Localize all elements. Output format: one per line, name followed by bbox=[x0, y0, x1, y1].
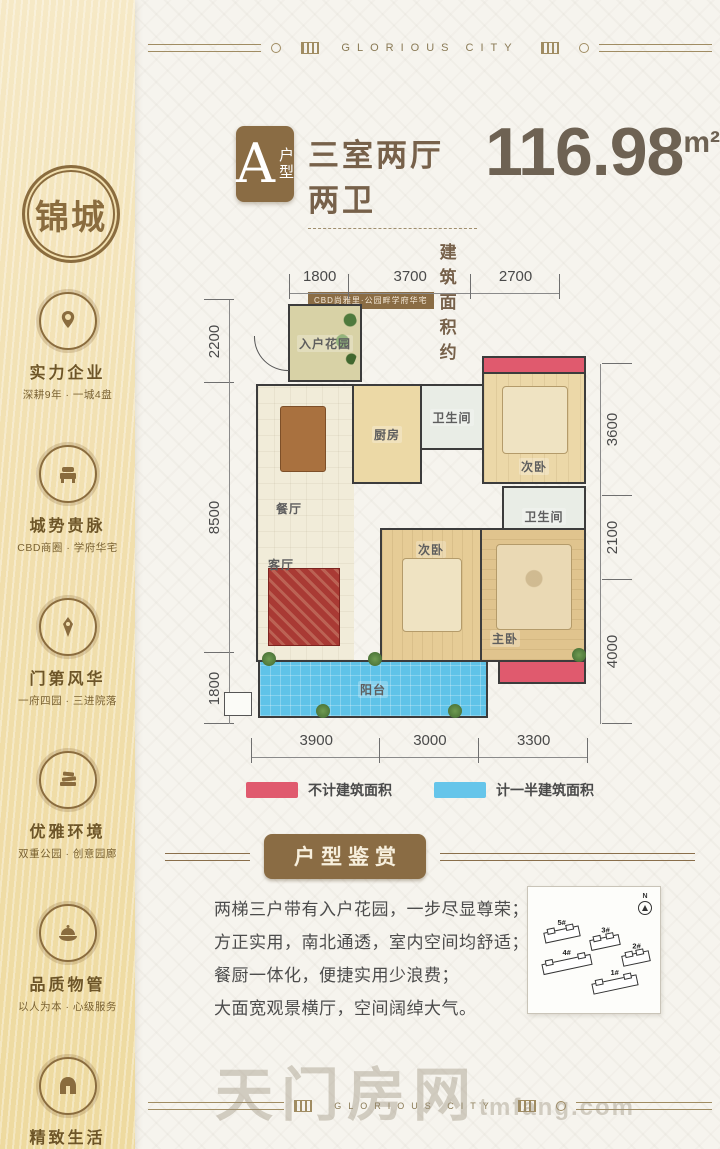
badge-title: 城势贵脉 bbox=[29, 512, 105, 536]
section-rule bbox=[440, 853, 695, 861]
living-room-rug bbox=[268, 568, 340, 646]
legend-label: 不计建筑面积 bbox=[308, 780, 392, 800]
banner-dot-ornament bbox=[556, 1101, 566, 1111]
room-label: 主卧 bbox=[490, 630, 520, 647]
dim-value: 2100 bbox=[605, 521, 622, 554]
plant-icon bbox=[448, 704, 462, 718]
building-outline: 2# bbox=[621, 950, 651, 967]
room-entry-garden: 入户花园 bbox=[288, 304, 362, 382]
pavilion-icon bbox=[39, 1057, 97, 1115]
legend-item-blue: 计一半建筑面积 bbox=[434, 780, 594, 800]
area-unit: m² bbox=[683, 126, 720, 160]
red-balcony-strip-bottom bbox=[498, 660, 586, 684]
bottom-banner: GLORIOUS CITY bbox=[148, 1100, 712, 1112]
description-line: 餐厨一体化，便捷实用少浪费； bbox=[214, 959, 530, 992]
dim-value: 2700 bbox=[499, 268, 532, 285]
books-icon bbox=[39, 751, 97, 809]
north-label: N bbox=[638, 893, 652, 900]
building-label: 4# bbox=[562, 948, 570, 957]
badge-heritage: 门第风华 一府四园 · 三进院落 bbox=[0, 598, 135, 708]
plant-icon bbox=[368, 652, 382, 666]
section-rule bbox=[165, 853, 250, 861]
badge-environment: 优雅环境 双重公园 · 创意园廊 bbox=[0, 751, 135, 861]
building-label: 5# bbox=[558, 918, 566, 927]
banner-square-ornament bbox=[301, 42, 319, 54]
service-tray-icon bbox=[39, 904, 97, 962]
building-outline: 1# bbox=[591, 974, 638, 994]
plant-icon bbox=[572, 648, 586, 662]
banner-square-ornament bbox=[518, 1100, 536, 1112]
banner-rule bbox=[148, 1102, 284, 1110]
banner-text: GLORIOUS CITY bbox=[334, 1101, 496, 1111]
plant-icon bbox=[262, 652, 276, 666]
dim-value: 1800 bbox=[303, 268, 336, 285]
dim-value: 3600 bbox=[605, 413, 622, 446]
sidebar: 锦城 实力企业 深耕9年 · 一城4盘 城势贵脉 CBD商圈 · 学府华宅 bbox=[0, 0, 135, 1149]
room-label: 餐厅 bbox=[276, 500, 302, 517]
bed bbox=[402, 558, 462, 632]
room-label: 入户花园 bbox=[297, 335, 353, 352]
dim-value: 3700 bbox=[393, 268, 426, 285]
dim-value: 4000 bbox=[605, 635, 622, 668]
top-banner: GLORIOUS CITY bbox=[148, 42, 712, 54]
dims-right: 3600 2100 4000 bbox=[600, 364, 626, 724]
brand-seal-logo: 锦城 bbox=[22, 165, 120, 263]
area-figure: 116.98 m² bbox=[485, 118, 720, 186]
dim-value: 2200 bbox=[207, 325, 224, 358]
badge-subtitle: CBD商圈 · 学府华宅 bbox=[17, 540, 118, 555]
badge-subtitle: 一府四园 · 三进院落 bbox=[18, 693, 117, 708]
banner-rule bbox=[576, 1102, 712, 1110]
watermark-cn: 天门房网 bbox=[215, 1063, 479, 1128]
badge-location: 城势贵脉 CBD商圈 · 学府华宅 bbox=[0, 445, 135, 555]
description-line: 两梯三户带有入户花园，一步尽显尊荣； bbox=[214, 893, 530, 926]
entry-door-arc bbox=[254, 336, 289, 371]
badge-subtitle: 深耕9年 · 一城4盘 bbox=[23, 387, 113, 402]
banner-rule bbox=[599, 44, 712, 52]
badge-property: 品质物管 以人为本 · 心级服务 bbox=[0, 904, 135, 1014]
dim-value: 3900 bbox=[300, 732, 333, 749]
section-header: 户型鉴赏 bbox=[165, 834, 695, 879]
room-label: 阳台 bbox=[358, 681, 388, 698]
building-label: 3# bbox=[601, 926, 609, 935]
red-balcony-strip-top bbox=[482, 356, 586, 374]
room-label: 次卧 bbox=[519, 458, 549, 475]
banner-square-ornament bbox=[294, 1100, 312, 1112]
dims-bottom: 3900 3000 3300 bbox=[252, 732, 588, 758]
north-arrow-icon: N bbox=[638, 893, 652, 915]
room-bathroom-1: 卫生间 bbox=[420, 384, 484, 450]
banner-square-ornament bbox=[541, 42, 559, 54]
pen-nib-icon bbox=[39, 598, 97, 656]
badge-title: 优雅环境 bbox=[29, 818, 105, 842]
room-label: 次卧 bbox=[416, 541, 446, 558]
unit-type-box: A 户 型 bbox=[236, 126, 294, 202]
building-outline: 3# bbox=[589, 934, 621, 951]
floor-plan: 入户花园 餐厅 客厅 厨房 卫生间 次卧 卫生间 次卧 主卧 阳台 bbox=[252, 300, 588, 724]
master-bed bbox=[496, 544, 572, 630]
layout-title: 三室两厅两卫 bbox=[308, 130, 477, 229]
banner-dot-ornament bbox=[271, 43, 281, 53]
badge-title: 门第风华 bbox=[29, 665, 105, 689]
unit-letter: A bbox=[236, 137, 275, 191]
throne-icon bbox=[39, 445, 97, 503]
building-outline: 4# bbox=[541, 954, 592, 975]
room-label: 卫生间 bbox=[430, 409, 473, 426]
poster-page: 锦城 实力企业 深耕9年 · 一城4盘 城势贵脉 CBD商圈 · 学府华宅 bbox=[0, 0, 720, 1149]
badge-lifestyle: 精致生活 一个5优家 · 一个6星厨 bbox=[0, 1057, 135, 1149]
dining-table bbox=[280, 406, 326, 472]
area-value: 116.98 bbox=[485, 118, 683, 186]
building-label: 2# bbox=[632, 942, 640, 951]
plan-legend: 不计建筑面积 计一半建筑面积 bbox=[150, 780, 690, 800]
banner-dot-ornament bbox=[579, 43, 589, 53]
plant-icon bbox=[316, 704, 330, 718]
red-swatch bbox=[246, 782, 298, 798]
logo-text: 锦城 bbox=[35, 190, 107, 239]
dim-value: 3000 bbox=[413, 732, 446, 749]
ac-platform bbox=[224, 692, 252, 716]
site-plan: N 5# 3# 2# 4# 1# bbox=[527, 886, 661, 1014]
description-line: 大面宽观景横厅，空间阔绰大气。 bbox=[214, 992, 530, 1025]
location-pin-icon bbox=[39, 292, 97, 350]
description-text: 两梯三户带有入户花园，一步尽显尊荣； 方正实用，南北通透，室内空间均舒适； 餐厨… bbox=[214, 893, 530, 1026]
dim-value: 8500 bbox=[207, 501, 224, 534]
badge-title: 精致生活 bbox=[29, 1124, 105, 1148]
legend-item-red: 不计建筑面积 bbox=[246, 780, 392, 800]
banner-text: GLORIOUS CITY bbox=[341, 42, 518, 54]
legend-label: 计一半建筑面积 bbox=[496, 780, 594, 800]
dim-value: 1800 bbox=[207, 672, 224, 705]
watermark: 天门房网tmfang.com bbox=[150, 1048, 700, 1132]
description-line: 方正实用，南北通透，室内空间均舒适； bbox=[214, 926, 530, 959]
badge-title: 品质物管 bbox=[29, 971, 105, 995]
badge-title: 实力企业 bbox=[29, 359, 105, 383]
banner-rule bbox=[148, 44, 261, 52]
dim-value: 3300 bbox=[517, 732, 550, 749]
section-title-badge: 户型鉴赏 bbox=[264, 834, 426, 879]
badge-subtitle: 双重公园 · 创意园廊 bbox=[18, 846, 117, 861]
dims-top: 1800 3700 2700 bbox=[290, 268, 560, 294]
building-label: 1# bbox=[610, 968, 618, 977]
unit-label: 户 型 bbox=[279, 147, 294, 182]
feature-badges: 实力企业 深耕9年 · 一城4盘 城势贵脉 CBD商圈 · 学府华宅 门第风华 … bbox=[0, 292, 135, 1149]
room-label: 厨房 bbox=[372, 426, 402, 443]
badge-subtitle: 以人为本 · 心级服务 bbox=[18, 999, 117, 1014]
building-outline: 5# bbox=[543, 925, 581, 943]
blue-swatch bbox=[434, 782, 486, 798]
dims-left: 2200 8500 1800 bbox=[202, 300, 228, 724]
badge-strength: 实力企业 深耕9年 · 一城4盘 bbox=[0, 292, 135, 402]
bed bbox=[502, 386, 568, 454]
room-kitchen: 厨房 bbox=[352, 384, 422, 484]
room-label: 客厅 bbox=[268, 556, 294, 573]
room-label: 卫生间 bbox=[522, 508, 565, 525]
